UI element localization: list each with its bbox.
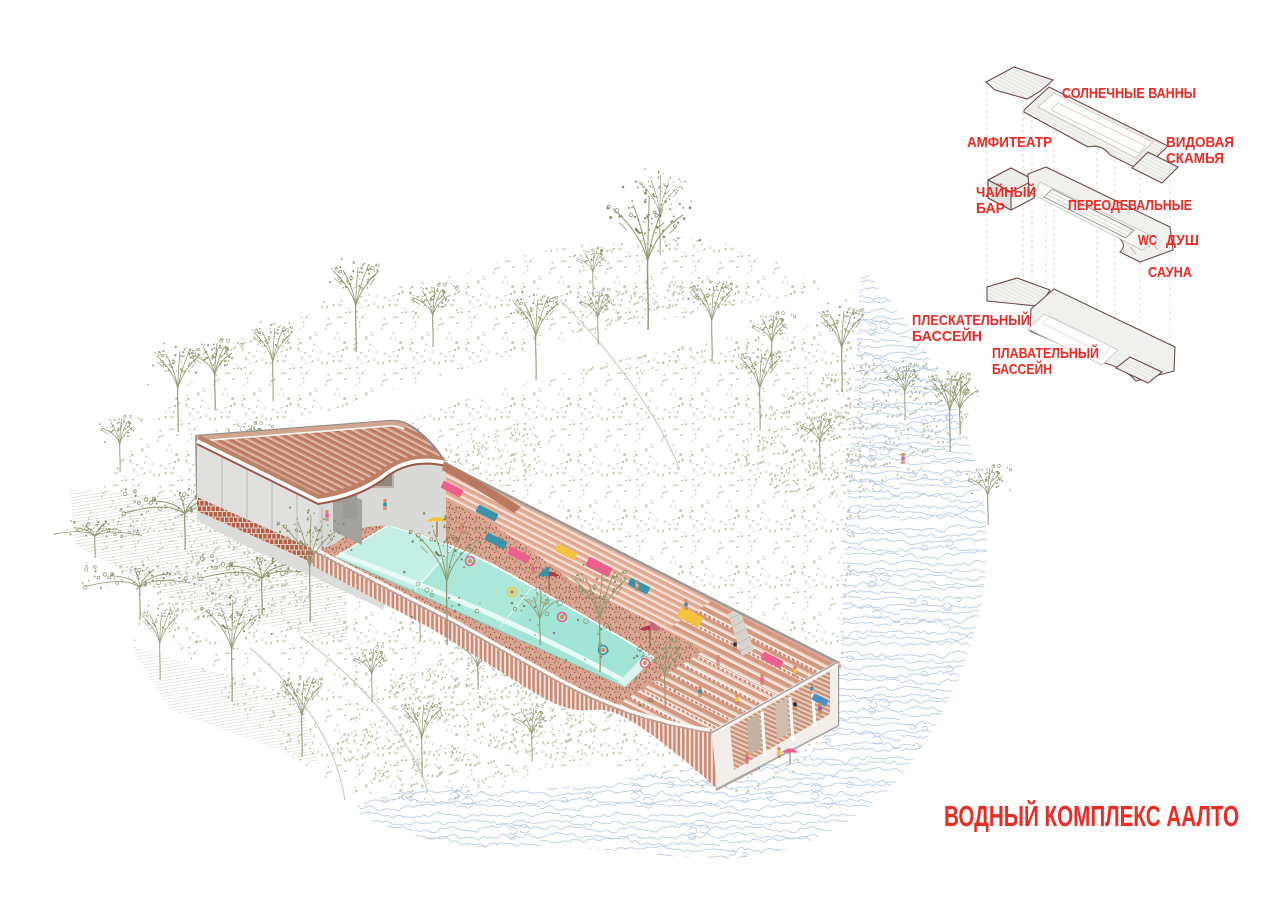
svg-text:САУНА: САУНА <box>1148 264 1192 281</box>
svg-text:СКАМЬЯ: СКАМЬЯ <box>1166 150 1224 167</box>
svg-text:ВОДНЫЙ КОМПЛЕКС ААЛТО: ВОДНЫЙ КОМПЛЕКС ААЛТО <box>944 799 1239 833</box>
svg-text:БАССЕЙН: БАССЕЙН <box>912 327 982 345</box>
svg-text:СОЛНЕЧНЫЕ ВАННЫ: СОЛНЕЧНЫЕ ВАННЫ <box>1062 85 1196 102</box>
svg-text:ЧАЙНЫЙ: ЧАЙНЫЙ <box>976 183 1036 201</box>
svg-text:WC: WC <box>1138 232 1157 249</box>
svg-text:ПЕРЕОДЕВАЛЬНЫЕ: ПЕРЕОДЕВАЛЬНЫЕ <box>1068 197 1192 214</box>
svg-text:БАССЕЙН: БАССЕЙН <box>992 360 1052 378</box>
svg-text:ПЛЕСКАТЕЛЬНЫЙ: ПЛЕСКАТЕЛЬНЫЙ <box>912 311 1030 329</box>
svg-text:ВИДОВАЯ: ВИДОВАЯ <box>1166 134 1234 151</box>
svg-text:БАР: БАР <box>976 200 1005 217</box>
svg-text:ДУШ: ДУШ <box>1166 232 1199 249</box>
svg-text:ПЛАВАТЕЛЬНЫЙ: ПЛАВАТЕЛЬНЫЙ <box>992 344 1099 362</box>
svg-text:АМФИТЕАТР: АМФИТЕАТР <box>967 134 1052 151</box>
